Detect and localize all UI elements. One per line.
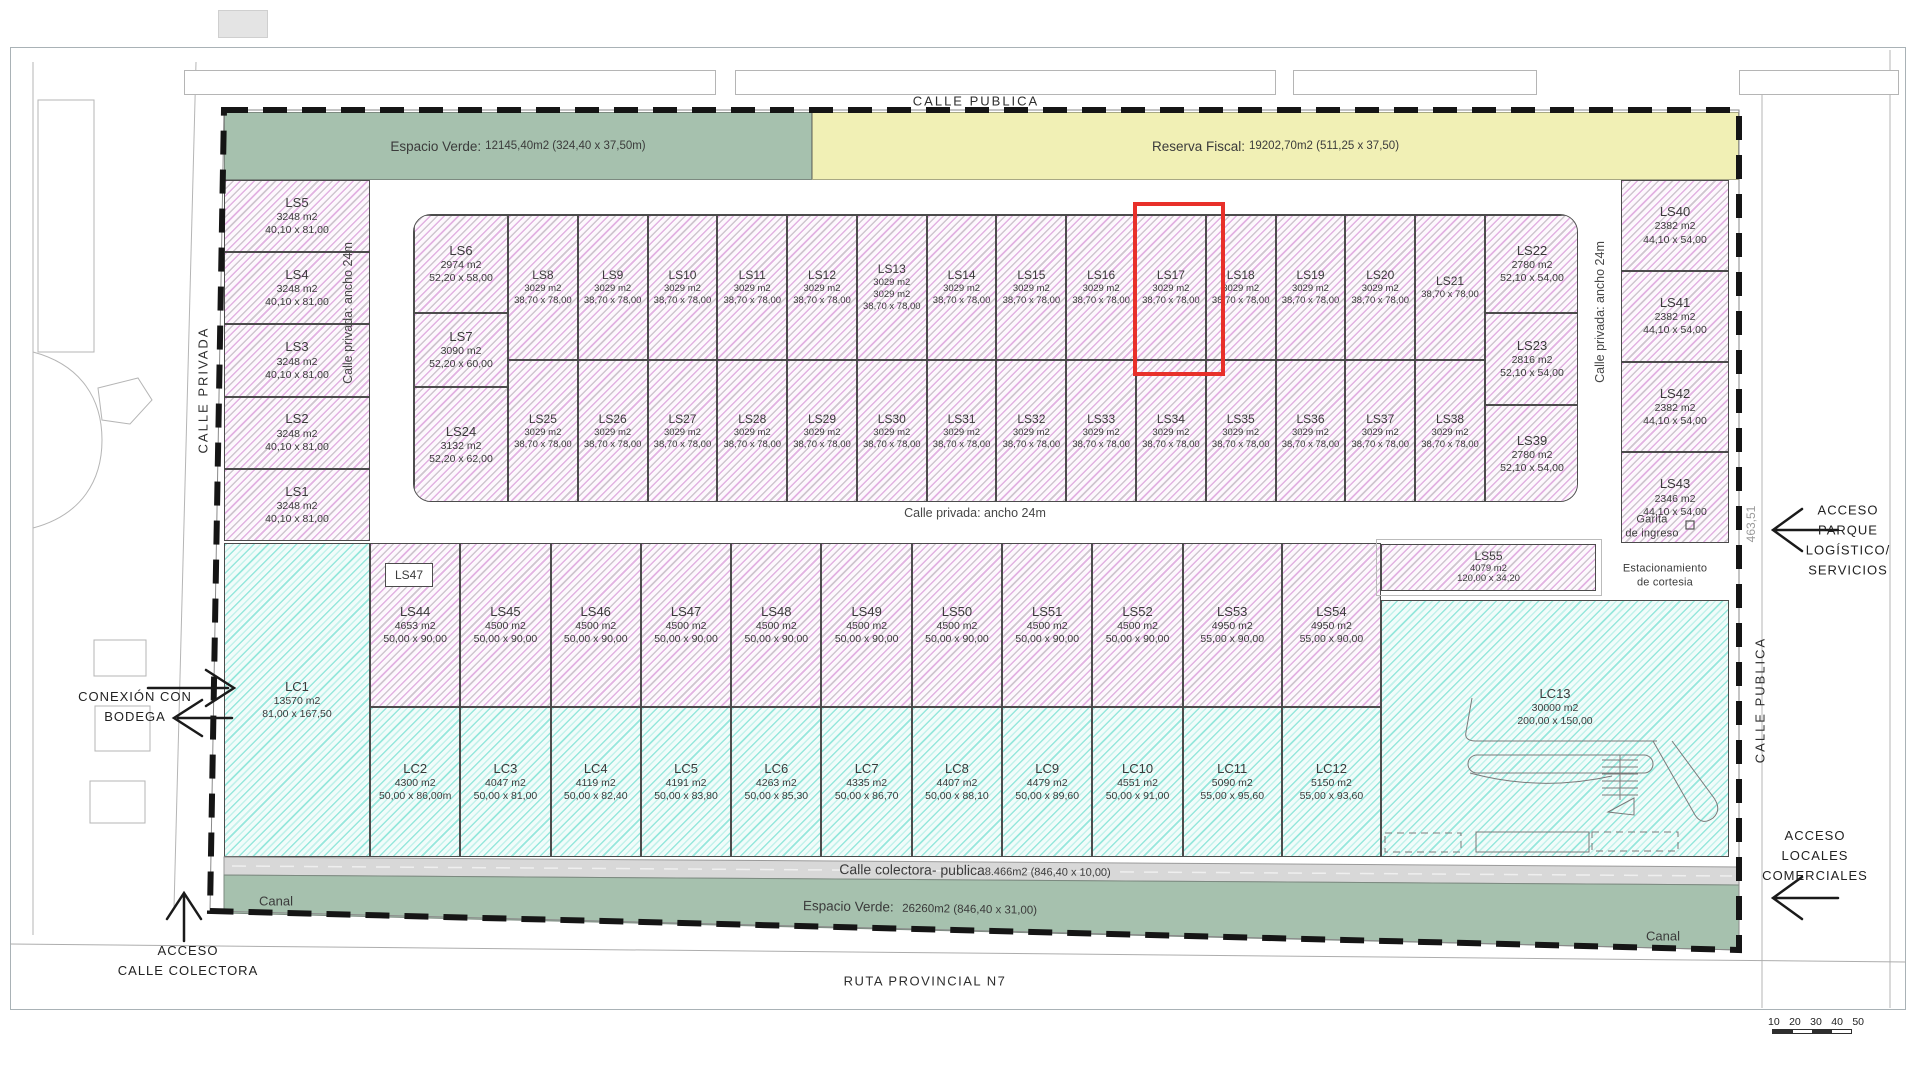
- lot-detail: 50,00 x 86,00m: [379, 790, 451, 803]
- lot-name: LS8: [532, 268, 553, 283]
- lot-detail: 38,70 x 78,00: [1421, 289, 1479, 301]
- lot-ls11[interactable]: LS113029 m238,70 x 78,00: [717, 215, 787, 360]
- lot-ls54[interactable]: LS544950 m255,00 x 90,00: [1282, 543, 1381, 707]
- lot-detail: 3029 m2: [1083, 427, 1120, 439]
- lot-name: LS28: [738, 412, 766, 427]
- lot-name: LC2: [403, 761, 427, 777]
- lot-name: LS53: [1217, 604, 1247, 620]
- lot-name: LS39: [1517, 433, 1547, 449]
- lot-detail: 4119 m2: [576, 777, 616, 790]
- lot-name: LS23: [1517, 338, 1547, 354]
- lot-detail: 3029 m2: [1222, 427, 1259, 439]
- neighbor-strip: [184, 70, 716, 95]
- lot-detail: 52,10 x 54,00: [1500, 272, 1564, 285]
- lot-detail: 3029 m2: [1013, 427, 1050, 439]
- lot-detail: 3029 m2: [1292, 283, 1329, 295]
- calle-privada-right-label: Calle privada: ancho 24m: [1593, 241, 1607, 383]
- lot-ls15[interactable]: LS153029 m238,70 x 78,00: [996, 215, 1066, 360]
- lot-detail: 3029 m2: [804, 427, 841, 439]
- lot-name: LC4: [584, 761, 608, 777]
- lot-ls13[interactable]: LS133029 m23029 m238,70 x 78,00: [857, 215, 927, 360]
- lot-name: LC8: [945, 761, 969, 777]
- lot-ls53[interactable]: LS534950 m255,00 x 90,00: [1183, 543, 1282, 707]
- canal-left-label: Canal: [259, 894, 293, 909]
- lot-name: LC12: [1316, 761, 1347, 777]
- lot-name: LS20: [1366, 268, 1394, 283]
- lot-detail: 52,10 x 54,00: [1500, 462, 1564, 475]
- lot-detail: 38,70 x 78,00: [863, 301, 921, 313]
- lot-detail: 55,00 x 95,60: [1200, 790, 1264, 803]
- lot-detail: 3029 m2: [1083, 283, 1120, 295]
- lot-detail: 52,10 x 54,00: [1500, 367, 1564, 380]
- lot-ls12[interactable]: LS123029 m238,70 x 78,00: [787, 215, 857, 360]
- lot-lc2[interactable]: LC24300 m250,00 x 86,00m: [370, 707, 460, 857]
- calle-publica-right-label: CALLE PUBLICA: [1753, 637, 1768, 763]
- lot-detail: 38,70 x 78,00: [1421, 439, 1479, 451]
- lot-detail: 4479 m2: [1027, 777, 1068, 790]
- lot-detail: 3132 m2: [441, 440, 482, 453]
- lot-detail: 3029 m2: [664, 283, 701, 295]
- lot-dims: 81,00 x 167,50: [262, 708, 331, 721]
- lot-name: LC10: [1122, 761, 1153, 777]
- lot-lc1[interactable]: LC1 13570 m2 81,00 x 167,50: [224, 543, 370, 857]
- lot-detail: 55,00 x 90,00: [1300, 633, 1364, 646]
- main-lot-block: LS62974 m252,20 x 58,00LS73090 m252,20 x…: [413, 214, 1578, 502]
- lot-detail: 2382 m2: [1655, 311, 1696, 324]
- lot-detail: 38,70 x 78,00: [584, 295, 642, 307]
- ls47-tag-label: LS47: [395, 568, 423, 582]
- lot-detail: 44,10 x 54,00: [1643, 234, 1707, 247]
- lot-detail: 38,70 x 78,00: [654, 295, 712, 307]
- lot-detail: 38,70 x 78,00: [514, 295, 572, 307]
- lot-detail: 4500 m2: [936, 620, 977, 633]
- espacio-verde-top-label: Espacio Verde:: [390, 139, 481, 154]
- lot-detail: 3029 m2: [734, 427, 771, 439]
- lot-ls35[interactable]: LS353029 m238,70 x 78,00: [1206, 360, 1276, 502]
- lot-ls48[interactable]: LS484500 m250,00 x 90,00: [731, 543, 821, 707]
- lot-detail: 3029 m2: [734, 283, 771, 295]
- lot-detail: 5150 m2: [1311, 777, 1352, 790]
- lot-ls40[interactable]: LS402382 m244,10 x 54,00: [1621, 180, 1729, 271]
- lot-name: LC5: [674, 761, 698, 777]
- lot-detail: 4551 m2: [1117, 777, 1158, 790]
- lot-name: LC11: [1217, 761, 1247, 777]
- lot-detail: 4500 m2: [756, 620, 797, 633]
- acceso-locales-label: ACCESO LOCALES COMERCIALES: [1762, 826, 1868, 886]
- lot-detail: 44,10 x 54,00: [1643, 415, 1707, 428]
- lot-detail: 50,00 x 90,00: [745, 633, 809, 646]
- lot-lc10[interactable]: LC104551 m250,00 x 91,00: [1092, 707, 1182, 857]
- block-right-column: LS222780 m252,10 x 54,00LS232816 m252,10…: [1485, 215, 1578, 502]
- lot-ls38[interactable]: LS383029 m238,70 x 78,00: [1415, 360, 1485, 502]
- lot-detail: 4335 m2: [846, 777, 887, 790]
- lot-detail: 50,00 x 90,00: [1015, 633, 1079, 646]
- lot-detail: 3029 m2: [1432, 427, 1469, 439]
- selected-lot-highlight[interactable]: [1133, 202, 1225, 376]
- middle-lot-row: LS444653 m250,00 x 90,00LS454500 m250,00…: [370, 543, 1381, 707]
- lot-name: LS41: [1660, 295, 1690, 311]
- lot-ls37[interactable]: LS373029 m238,70 x 78,00: [1345, 360, 1415, 502]
- lot-detail: 3029 m2: [1292, 427, 1329, 439]
- lot-ls25[interactable]: LS253029 m238,70 x 78,00: [508, 360, 578, 502]
- lot-detail: 4263 m2: [756, 777, 797, 790]
- lot-lc12[interactable]: LC125150 m255,00 x 93,60: [1282, 707, 1381, 857]
- lot-detail: 38,70 x 78,00: [1003, 295, 1061, 307]
- lot-name: LS49: [851, 604, 881, 620]
- lot-detail: 50,00 x 90,00: [564, 633, 628, 646]
- lot-ls31[interactable]: LS313029 m238,70 x 78,00: [927, 360, 997, 502]
- lot-lc13[interactable]: LC13 30000 m2 200,00 x 150,00: [1381, 600, 1729, 857]
- lot-detail: 3248 m2: [277, 356, 318, 369]
- lot-name: LS22: [1517, 243, 1547, 259]
- lot-detail: 3029 m2: [664, 427, 701, 439]
- lot-detail: 3029 m2: [524, 283, 561, 295]
- lot-lc7[interactable]: LC74335 m250,00 x 86,70: [821, 707, 911, 857]
- lot-dims: 200,00 x 150,00: [1517, 715, 1592, 728]
- lot-detail: 50,00 x 85,30: [745, 790, 809, 803]
- reserva-fiscal-value: 19202,70m2 (511,25 x 37,50): [1249, 140, 1399, 152]
- lot-ls14[interactable]: LS143029 m238,70 x 78,00: [927, 215, 997, 360]
- lot-detail: 3029 m2: [1013, 283, 1050, 295]
- lot-detail: 2816 m2: [1512, 354, 1553, 367]
- lot-lc8[interactable]: LC84407 m250,00 x 88,10: [912, 707, 1002, 857]
- scale-bar: 1020304050: [1768, 1016, 1864, 1034]
- lot-ls24[interactable]: LS243132 m252,20 x 62,00: [414, 387, 508, 502]
- espacio-verde-top-value: 12145,40m2 (324,40 x 37,50m): [485, 140, 645, 152]
- canal-right-label: Canal: [1646, 929, 1680, 944]
- lot-detail: 40,10 x 81,00: [265, 441, 329, 454]
- acceso-colectora-label: ACCESO CALLE COLECTORA: [118, 941, 258, 981]
- lot-name: LS4: [285, 267, 308, 283]
- lot-detail: 50,00 x 88,10: [925, 790, 989, 803]
- lot-name: LC13: [1539, 686, 1570, 702]
- lot-detail: 40,10 x 81,00: [265, 296, 329, 309]
- lot-detail: 3090 m2: [441, 345, 482, 358]
- lot-ls19[interactable]: LS193029 m238,70 x 78,00: [1276, 215, 1346, 360]
- lot-ls6[interactable]: LS62974 m252,20 x 58,00: [414, 215, 508, 313]
- lot-detail: 50,00 x 83,80: [654, 790, 718, 803]
- lot-name: LC9: [1035, 761, 1059, 777]
- lot-name: LS7: [449, 329, 472, 345]
- calle-privada-left-label: Calle privada: ancho 24m: [341, 242, 355, 384]
- calle-privada-bottom-label: Calle privada: ancho 24m: [904, 506, 1046, 520]
- lot-detail: 38,70 x 78,00: [584, 439, 642, 451]
- lot-ls8[interactable]: LS83029 m238,70 x 78,00: [508, 215, 578, 360]
- lot-name: LS19: [1296, 268, 1324, 283]
- lot-detail: 3029 m2: [804, 283, 841, 295]
- lot-detail: 38,70 x 78,00: [1282, 439, 1340, 451]
- lot-detail: 50,00 x 82,40: [564, 790, 628, 803]
- lot-detail: 38,70 x 78,00: [654, 439, 712, 451]
- lot-name: LS16: [1087, 268, 1115, 283]
- lot-detail: 3029 m2: [1152, 427, 1189, 439]
- lot-name: LS42: [1660, 386, 1690, 402]
- block-top-row: LS83029 m238,70 x 78,00LS93029 m238,70 x…: [508, 215, 1485, 360]
- lot-name: LS38: [1436, 412, 1464, 427]
- estacionamiento-label: Estacionamiento de cortesia: [1623, 562, 1707, 591]
- garita-label: Garita de ingreso: [1625, 513, 1678, 542]
- calle-privada-outside-label: CALLE PRIVADA: [196, 327, 211, 454]
- lot-detail: 2346 m2: [1655, 493, 1696, 506]
- lot-name: LS36: [1296, 412, 1324, 427]
- lot-ls41[interactable]: LS412382 m244,10 x 54,00: [1621, 271, 1729, 362]
- lot-detail: 52,20 x 62,00: [429, 453, 493, 466]
- lot-ls49[interactable]: LS494500 m250,00 x 90,00: [821, 543, 911, 707]
- lot-lc3[interactable]: LC34047 m250,00 x 81,00: [460, 707, 550, 857]
- lot-detail: 38,70 x 78,00: [863, 439, 921, 451]
- lot-detail: 38,70 x 78,00: [514, 439, 572, 451]
- neighbor-strip: [1739, 70, 1899, 95]
- lot-detail: 3029 m2: [1222, 283, 1259, 295]
- lot-detail: 4500 m2: [1027, 620, 1068, 633]
- lot-ls2[interactable]: LS23248 m240,10 x 81,00: [224, 397, 370, 469]
- lot-name: LS21: [1436, 274, 1464, 289]
- lot-name: LS18: [1227, 268, 1255, 283]
- lot-area: 13570 m2: [274, 695, 321, 708]
- lot-ls55[interactable]: LS55 4079 m2 120,00 x 34,20: [1381, 544, 1596, 591]
- lot-detail: 50,00 x 81,00: [474, 790, 538, 803]
- conexion-bodega-label: CONEXIÓN CON BODEGA: [78, 687, 192, 727]
- commercial-lot-row: LC24300 m250,00 x 86,00mLC34047 m250,00 …: [370, 707, 1381, 857]
- lot-ls52[interactable]: LS524500 m250,00 x 90,00: [1092, 543, 1182, 707]
- lot-lc6[interactable]: LC64263 m250,00 x 85,30: [731, 707, 821, 857]
- lot-name: LS54: [1316, 604, 1346, 620]
- zone-espacio-verde-top[interactable]: Espacio Verde: 12145,40m2 (324,40 x 37,5…: [224, 112, 812, 180]
- lot-detail: 38,70 x 78,00: [1072, 439, 1130, 451]
- lot-name: LS12: [808, 268, 836, 283]
- lot-detail: 50,00 x 89,60: [1015, 790, 1079, 803]
- espacio-verde-bottom-label: Espacio Verde: 26260m2 (846,40 x 31,00): [803, 897, 1037, 919]
- lot-name: LS13: [878, 262, 906, 277]
- lot-detail: 3248 m2: [277, 500, 318, 513]
- lot-lc5[interactable]: LC54191 m250,00 x 83,80: [641, 707, 731, 857]
- lot-name: LS46: [581, 604, 611, 620]
- lot-detail: 50,00 x 90,00: [383, 633, 447, 646]
- lot-name: LS40: [1660, 204, 1690, 220]
- lot-detail: 2382 m2: [1655, 402, 1696, 415]
- lot-detail: 38,70 x 78,00: [1142, 439, 1200, 451]
- lot-detail: 3029 m2: [873, 427, 910, 439]
- lot-name: LS29: [808, 412, 836, 427]
- lot-detail: 3248 m2: [277, 283, 318, 296]
- lot-detail: 50,00 x 91,00: [1106, 790, 1170, 803]
- site-plan-canvas: Espacio Verde: 12145,40m2 (324,40 x 37,5…: [0, 0, 1920, 1080]
- lot-detail: 40,10 x 81,00: [265, 224, 329, 237]
- lot-ls39[interactable]: LS392780 m252,10 x 54,00: [1485, 405, 1578, 502]
- lot-name: LS32: [1017, 412, 1045, 427]
- lot-area: 30000 m2: [1532, 702, 1579, 715]
- lot-name: LS25: [529, 412, 557, 427]
- lot-detail: 3029 m2: [873, 289, 910, 301]
- lot-detail: 3248 m2: [277, 211, 318, 224]
- lot-detail: 38,70 x 78,00: [1003, 439, 1061, 451]
- lot-name: LS5: [285, 195, 308, 211]
- lot-detail: 2780 m2: [1512, 449, 1553, 462]
- lot-lc9[interactable]: LC94479 m250,00 x 89,60: [1002, 707, 1092, 857]
- calle-publica-top-label: CALLE PUBLICA: [913, 94, 1039, 109]
- lot-name: LS33: [1087, 412, 1115, 427]
- lot-detail: 50,00 x 90,00: [474, 633, 538, 646]
- lot-name: LS10: [668, 268, 696, 283]
- lot-detail: 38,70 x 78,00: [933, 295, 991, 307]
- lot-ls28[interactable]: LS283029 m238,70 x 78,00: [717, 360, 787, 502]
- lot-name: LS15: [1017, 268, 1045, 283]
- lot-name: LS45: [490, 604, 520, 620]
- reserva-fiscal-label: Reserva Fiscal:: [1152, 139, 1245, 154]
- lot-detail: 38,70 x 78,00: [793, 295, 851, 307]
- lot-detail: 4500 m2: [846, 620, 887, 633]
- lot-name: LS52: [1122, 604, 1152, 620]
- lot-detail: 38,70 x 78,00: [933, 439, 991, 451]
- lot-detail: 3029 m2: [873, 277, 910, 289]
- lot-ls30[interactable]: LS303029 m238,70 x 78,00: [857, 360, 927, 502]
- lot-detail: 2780 m2: [1512, 259, 1553, 272]
- lot-name: LS47: [671, 604, 701, 620]
- lot-detail: 55,00 x 93,60: [1300, 790, 1364, 803]
- lot-name: LS44: [400, 604, 430, 620]
- lot-detail: 4047 m2: [485, 777, 526, 790]
- lot-lc11[interactable]: LC115090 m255,00 x 95,60: [1183, 707, 1282, 857]
- lot-detail: 50,00 x 90,00: [1106, 633, 1170, 646]
- neighbor-strip: [1293, 70, 1537, 95]
- lot-name: LS31: [948, 412, 976, 427]
- lot-detail: 3029 m2: [594, 283, 631, 295]
- neighbor-block: [218, 10, 268, 38]
- lot-detail: 55,00 x 90,00: [1200, 633, 1264, 646]
- block-bottom-row: LS253029 m238,70 x 78,00LS263029 m238,70…: [508, 360, 1485, 502]
- lot-name: LS1: [285, 484, 308, 500]
- lot-name: LS26: [599, 412, 627, 427]
- lot-ls7[interactable]: LS73090 m252,20 x 60,00: [414, 313, 508, 387]
- lot-lc4[interactable]: LC44119 m250,00 x 82,40: [551, 707, 641, 857]
- lot-name: LS43: [1660, 476, 1690, 492]
- lot-ls20[interactable]: LS203029 m238,70 x 78,00: [1345, 215, 1415, 360]
- lot-detail: 40,10 x 81,00: [265, 513, 329, 526]
- lot-name: LS14: [948, 268, 976, 283]
- lot-dims: 120,00 x 34,20: [1457, 574, 1520, 584]
- lot-detail: 38,70 x 78,00: [1212, 439, 1270, 451]
- lot-detail: 38,70 x 78,00: [723, 439, 781, 451]
- lot-name: LS30: [878, 412, 906, 427]
- lot-detail: 3029 m2: [594, 427, 631, 439]
- lot-detail: 44,10 x 54,00: [1643, 324, 1707, 337]
- lot-name: LS6: [449, 243, 472, 259]
- lot-detail: 3029 m2: [943, 427, 980, 439]
- lot-detail: 4500 m2: [485, 620, 526, 633]
- lot-name: LS2: [285, 411, 308, 427]
- lot-name: LC6: [764, 761, 788, 777]
- lot-detail: 4950 m2: [1212, 620, 1253, 633]
- lot-name: LS27: [668, 412, 696, 427]
- lot-name: LS24: [446, 424, 476, 440]
- lot-ls36[interactable]: LS363029 m238,70 x 78,00: [1276, 360, 1346, 502]
- lot-detail: 3029 m2: [1362, 427, 1399, 439]
- lot-detail: 50,00 x 90,00: [835, 633, 899, 646]
- lot-detail: 2382 m2: [1655, 220, 1696, 233]
- lot-ls51[interactable]: LS514500 m250,00 x 90,00: [1002, 543, 1092, 707]
- ruta-provincial-label: RUTA PROVINCIAL N7: [844, 974, 1007, 989]
- lot-name: LC1: [285, 679, 309, 695]
- lot-name: LS35: [1227, 412, 1255, 427]
- lot-detail: 2974 m2: [441, 259, 482, 272]
- lot-detail: 4407 m2: [936, 777, 977, 790]
- lot-ls34[interactable]: LS343029 m238,70 x 78,00: [1136, 360, 1206, 502]
- lot-name: LC7: [855, 761, 879, 777]
- lot-detail: 4300 m2: [395, 777, 436, 790]
- lot-detail: 3029 m2: [943, 283, 980, 295]
- lot-detail: 3029 m2: [1362, 283, 1399, 295]
- lot-name: LC3: [494, 761, 518, 777]
- lot-detail: 4500 m2: [666, 620, 707, 633]
- lot-detail: 40,10 x 81,00: [265, 369, 329, 382]
- lot-detail: 38,70 x 78,00: [1351, 439, 1409, 451]
- dimension-463: 463,51: [1744, 506, 1758, 543]
- acceso-parque-label: ACCESO PARQUE LOGÍSTICO/ SERVICIOS: [1806, 501, 1890, 582]
- lot-detail: 50,00 x 90,00: [925, 633, 989, 646]
- lot-detail: 4950 m2: [1311, 620, 1352, 633]
- block-column-ls6: LS62974 m252,20 x 58,00LS73090 m252,20 x…: [414, 215, 508, 502]
- zone-reserva-fiscal[interactable]: Reserva Fiscal: 19202,70m2 (511,25 x 37,…: [812, 112, 1739, 180]
- lot-ls29[interactable]: LS293029 m238,70 x 78,00: [787, 360, 857, 502]
- colectora-label: Calle colectora- publica8.466m2 (846,40 …: [839, 861, 1111, 881]
- lot-name: LS51: [1032, 604, 1062, 620]
- lot-ls22[interactable]: LS222780 m252,10 x 54,00: [1485, 215, 1578, 313]
- lot-detail: 50,00 x 90,00: [654, 633, 718, 646]
- lot-name: LS50: [942, 604, 972, 620]
- lot-detail: 3248 m2: [277, 428, 318, 441]
- lot-name: LS55: [1474, 550, 1502, 563]
- neighbor-strip: [735, 70, 1276, 95]
- lot-detail: 38,70 x 78,00: [1282, 295, 1340, 307]
- lot-detail: 4653 m2: [395, 620, 436, 633]
- lot-ls16[interactable]: LS163029 m238,70 x 78,00: [1066, 215, 1136, 360]
- lot-name: LS11: [739, 268, 766, 283]
- lot-detail: 4500 m2: [575, 620, 616, 633]
- lot-detail: 4191 m2: [666, 777, 707, 790]
- right-lot-column: LS402382 m244,10 x 54,00LS412382 m244,10…: [1621, 180, 1729, 543]
- lot-ls23[interactable]: LS232816 m252,10 x 54,00: [1485, 313, 1578, 405]
- lot-name: LS37: [1366, 412, 1394, 427]
- lot-ls47[interactable]: LS474500 m250,00 x 90,00: [641, 543, 731, 707]
- lot-detail: 3029 m2: [524, 427, 561, 439]
- lot-name: LS9: [602, 268, 623, 283]
- lot-detail: 50,00 x 86,70: [835, 790, 899, 803]
- lot-detail: 38,70 x 78,00: [1351, 295, 1409, 307]
- lot-detail: 38,70 x 78,00: [1072, 295, 1130, 307]
- ls47-tag[interactable]: LS47: [385, 563, 433, 587]
- lot-ls45[interactable]: LS454500 m250,00 x 90,00: [460, 543, 550, 707]
- lot-ls32[interactable]: LS323029 m238,70 x 78,00: [996, 360, 1066, 502]
- lot-ls27[interactable]: LS273029 m238,70 x 78,00: [648, 360, 718, 502]
- lot-detail: 38,70 x 78,00: [723, 295, 781, 307]
- lot-name: LS34: [1157, 412, 1185, 427]
- lot-name: LS48: [761, 604, 791, 620]
- lot-detail: 4500 m2: [1117, 620, 1158, 633]
- lot-ls1[interactable]: LS13248 m240,10 x 81,00: [224, 469, 370, 541]
- lot-ls21[interactable]: LS2138,70 x 78,00: [1415, 215, 1485, 360]
- lot-ls33[interactable]: LS333029 m238,70 x 78,00: [1066, 360, 1136, 502]
- lot-name: LS3: [285, 339, 308, 355]
- lot-ls50[interactable]: LS504500 m250,00 x 90,00: [912, 543, 1002, 707]
- lot-ls10[interactable]: LS103029 m238,70 x 78,00: [648, 215, 718, 360]
- lot-detail: 38,70 x 78,00: [793, 439, 851, 451]
- lot-ls9[interactable]: LS93029 m238,70 x 78,00: [578, 215, 648, 360]
- lot-ls46[interactable]: LS464500 m250,00 x 90,00: [551, 543, 641, 707]
- lot-ls42[interactable]: LS422382 m244,10 x 54,00: [1621, 362, 1729, 453]
- lot-detail: 52,20 x 58,00: [429, 272, 493, 285]
- lot-detail: 5090 m2: [1212, 777, 1253, 790]
- lot-ls26[interactable]: LS263029 m238,70 x 78,00: [578, 360, 648, 502]
